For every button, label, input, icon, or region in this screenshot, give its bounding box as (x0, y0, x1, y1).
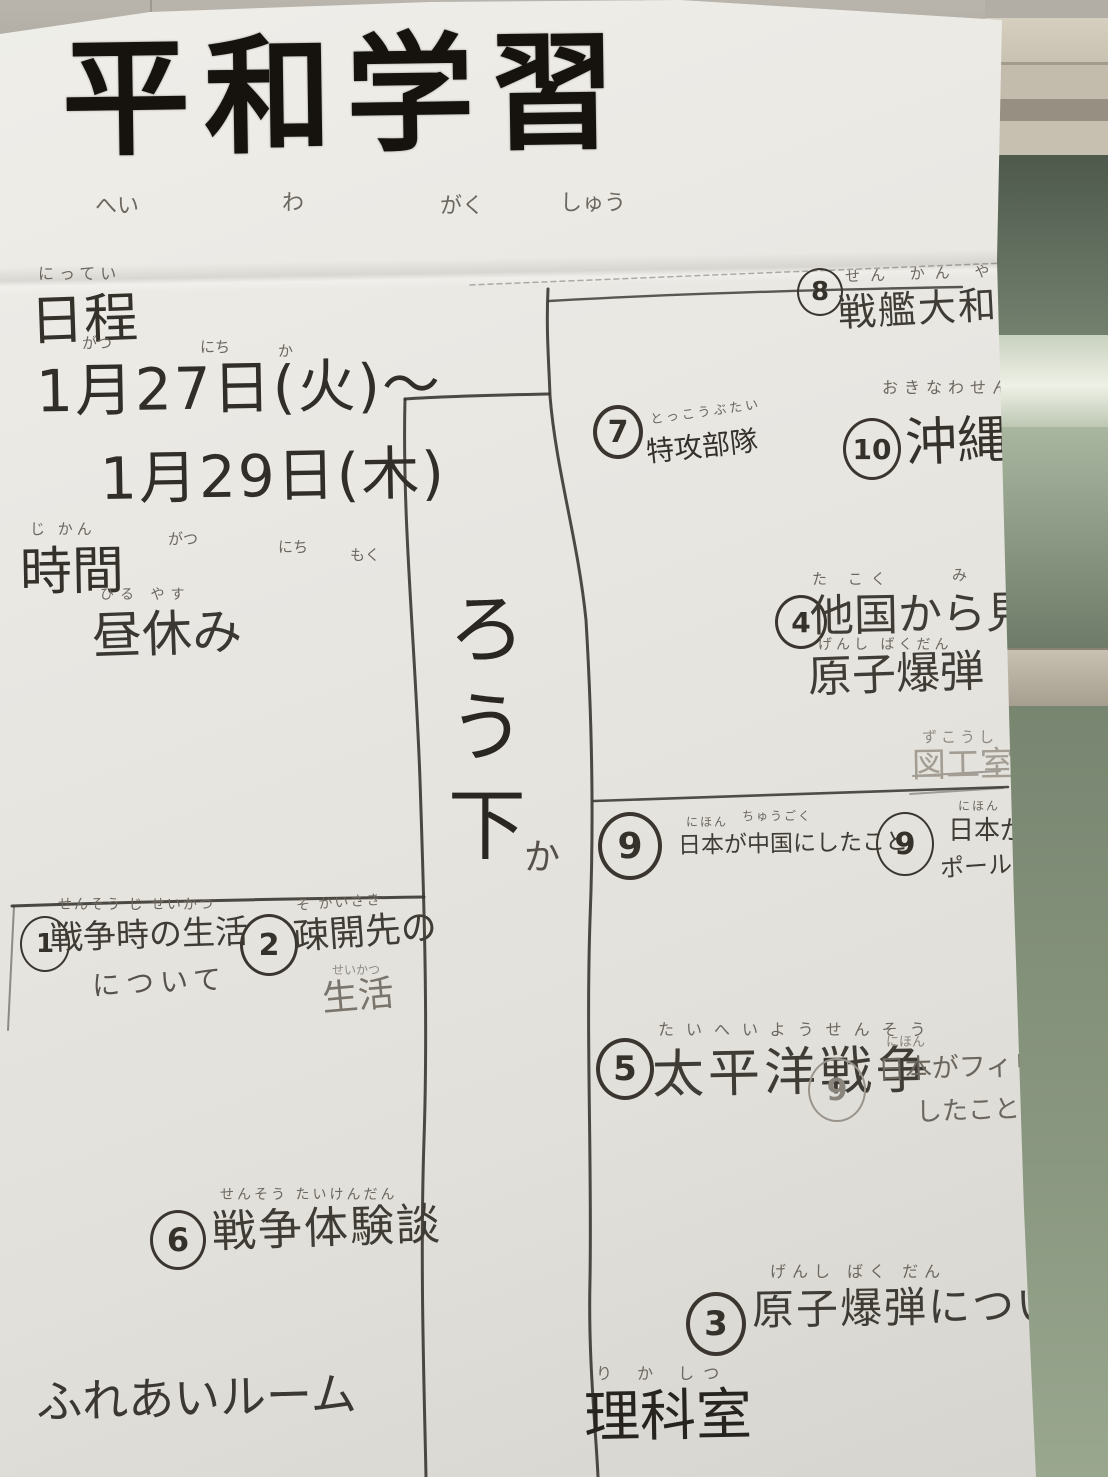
window-frame-bar (985, 99, 1108, 121)
station-4-furigana-mi: み (952, 568, 967, 583)
title-furigana-shuu: しゅう (560, 193, 626, 215)
schedule-date-end: 1月29日(木) (99, 443, 446, 510)
station-1-furigana: せんそう じ せいかつ (58, 898, 215, 912)
right-room-divider (594, 787, 1008, 801)
room-fureai-label: ふれあいルーム (35, 1370, 357, 1427)
station-9a-label: 日本が中国にしたこと (678, 830, 908, 858)
title-furigana-wa: わ (282, 193, 304, 215)
title-furigana-hei: へい (95, 196, 139, 218)
station-9b-number: 9 (876, 812, 934, 876)
schedule-heading-furigana: にってい (38, 266, 121, 282)
title-furigana-gaku: がく (440, 196, 484, 218)
station-3-furigana: げんし ばく だん (770, 1264, 946, 1280)
station-6-number: 6 (150, 1210, 206, 1270)
station-3-number: 3 (686, 1292, 746, 1356)
station-10-number: 10 (843, 418, 901, 480)
schedule-date-start: 1月27日(火)〜 (35, 354, 442, 422)
station-9c-label-line2: したこと (916, 1096, 1021, 1127)
station-2-label-line2: 生活 (320, 975, 395, 1019)
corridor-right-wall (547, 289, 598, 1477)
window-glass-pane (985, 155, 1108, 335)
time-value: 昼休み (91, 605, 243, 663)
corridor-label: ろう下 (438, 588, 520, 882)
station-9b-furigana: にほん (958, 800, 1000, 812)
room-rika-furigana: り か しつ (596, 1366, 729, 1382)
window-frame-trim (985, 65, 1108, 99)
station-9c-number: 9 (808, 1058, 866, 1122)
window-glass-highlight (985, 335, 1108, 427)
station-2-number: 2 (240, 914, 298, 976)
time-heading-furigana: じ かん (30, 522, 96, 537)
time-value-furigana: ひる やす (100, 588, 190, 602)
station-5-number: 5 (596, 1038, 654, 1100)
station-9c-furigana: にほん (886, 1036, 925, 1049)
left-room-edge (8, 906, 14, 1030)
station-6-furigana: せんそう たいけんだん (220, 1188, 397, 1202)
station-3-label: 原子爆弾につい (752, 1283, 1061, 1332)
date2-furigana-gatsu: がつ (168, 532, 198, 547)
photo-of-peace-study-poster: { "title": { "text": "平和学習", "furigana_p… (0, 0, 1108, 1477)
date2-furigana-moku: もく (350, 548, 380, 563)
date1-furigana-gatsu: がつ (82, 336, 112, 351)
window-frame-top (985, 18, 1108, 65)
station-6-label: 戦争体験談 (211, 1202, 442, 1256)
room-zuko-furigana: ずこうし (922, 730, 998, 745)
station-1-label: 戦争時の生活 (49, 915, 248, 957)
poster-title: 平和学習 (61, 26, 631, 168)
station-8-label: 戦艦大和 (837, 286, 999, 334)
date1-furigana-nichi: にち (200, 340, 230, 355)
room-zuko-label: 図工室 (912, 747, 1015, 784)
station-10-furigana: おきなわせん (882, 380, 1014, 396)
station-9a-number: 9 (598, 812, 662, 880)
room-rika-label: 理科室 (583, 1387, 752, 1449)
station-1-label-line2: について (91, 964, 228, 1000)
corridor-furigana: か (524, 840, 560, 876)
date2-furigana-nichi: にち (278, 540, 308, 555)
station-9a-furigana-nihon: にほん (686, 816, 728, 828)
window-frame-trim (985, 121, 1108, 155)
station-4-furigana: た こく (812, 572, 894, 587)
station-4-label-line2: 原子爆弾 (807, 649, 985, 701)
poster-paper: 平和学習 へい わ がく しゅう にってい 日程 がつ にち か 1月27日(火… (0, 0, 1108, 1477)
wall-strip (985, 0, 1108, 18)
station-9a-furigana-chugoku: ちゅうごく (742, 810, 812, 822)
station-7-number: 7 (593, 405, 643, 459)
